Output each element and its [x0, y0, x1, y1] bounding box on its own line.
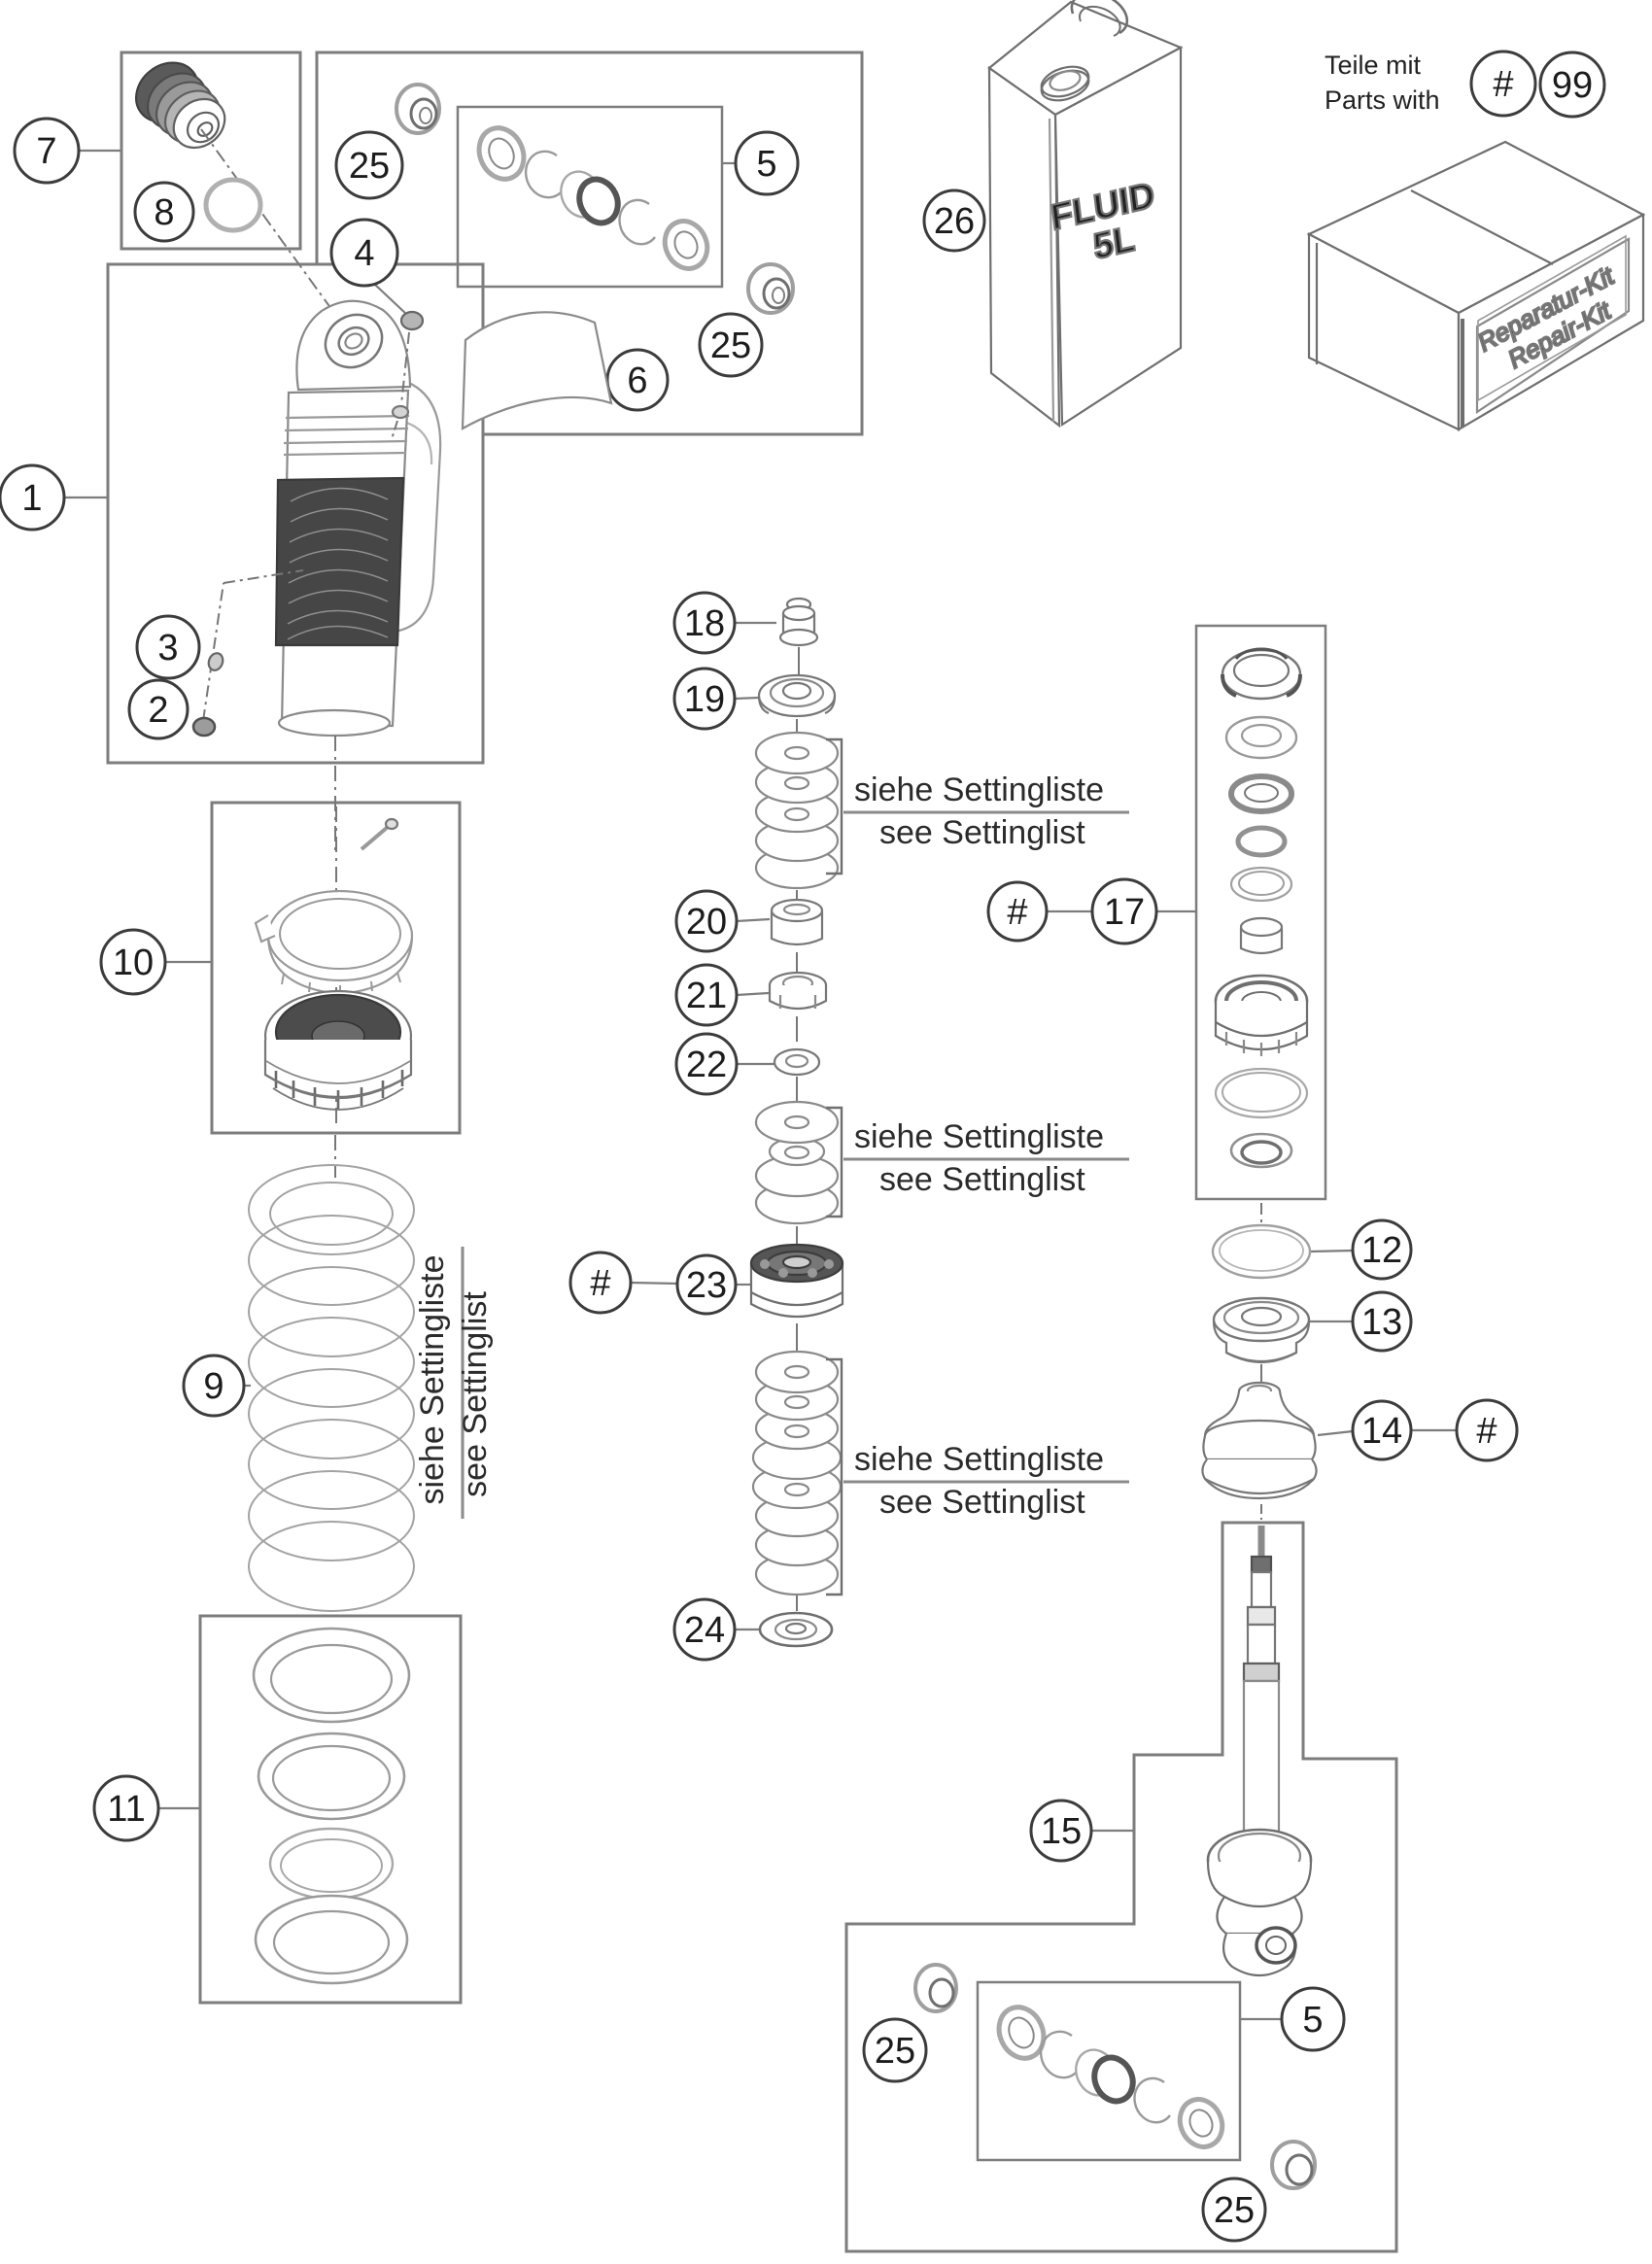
svg-text:Teile mit: Teile mit: [1325, 51, 1422, 80]
svg-text:22: 22: [686, 1045, 727, 1085]
svg-text:8: 8: [154, 192, 174, 233]
svg-text:Parts with: Parts with: [1325, 86, 1440, 115]
svg-text:3: 3: [157, 628, 178, 669]
svg-text:17: 17: [1104, 892, 1145, 933]
svg-text:18: 18: [684, 603, 725, 644]
svg-text:2: 2: [148, 690, 168, 731]
svg-text:siehe Settingliste: siehe Settingliste: [854, 1118, 1104, 1155]
svg-text:25: 25: [1214, 2190, 1255, 2231]
svg-text:7: 7: [36, 131, 56, 172]
svg-text:#: #: [1493, 64, 1513, 105]
svg-text:see Settinglist: see Settinglist: [879, 1161, 1085, 1198]
svg-text:25: 25: [349, 146, 390, 187]
svg-text:23: 23: [686, 1265, 727, 1306]
svg-text:99: 99: [1552, 65, 1593, 106]
svg-text:9: 9: [203, 1366, 224, 1407]
svg-text:see Settinglist: see Settinglist: [879, 1484, 1085, 1521]
svg-text:20: 20: [686, 902, 727, 943]
svg-text:5: 5: [1302, 2000, 1323, 2041]
svg-text:see Settinglist: see Settinglist: [879, 814, 1085, 851]
svg-text:4: 4: [354, 233, 374, 274]
svg-text:6: 6: [627, 360, 647, 401]
svg-text:siehe Settingliste: siehe Settingliste: [414, 1254, 451, 1504]
svg-text:25: 25: [710, 326, 751, 366]
svg-text:10: 10: [113, 943, 154, 983]
svg-text:5: 5: [756, 144, 776, 185]
svg-text:19: 19: [684, 679, 725, 720]
svg-text:#: #: [590, 1263, 610, 1304]
svg-text:1: 1: [21, 478, 42, 519]
svg-text:14: 14: [1361, 1411, 1402, 1452]
svg-text:24: 24: [684, 1610, 725, 1651]
svg-text:26: 26: [934, 201, 975, 242]
svg-text:11: 11: [107, 1789, 145, 1830]
svg-text:see Settinglist: see Settinglist: [457, 1291, 494, 1497]
svg-text:siehe Settingliste: siehe Settingliste: [854, 1441, 1104, 1478]
svg-text:15: 15: [1041, 1811, 1082, 1852]
svg-text:#: #: [1476, 1411, 1497, 1452]
svg-text:13: 13: [1361, 1302, 1402, 1343]
svg-text:#: #: [1007, 892, 1027, 933]
svg-text:21: 21: [686, 976, 727, 1016]
svg-text:siehe Settingliste: siehe Settingliste: [854, 772, 1104, 808]
svg-text:25: 25: [875, 2031, 915, 2072]
svg-text:12: 12: [1361, 1230, 1402, 1271]
